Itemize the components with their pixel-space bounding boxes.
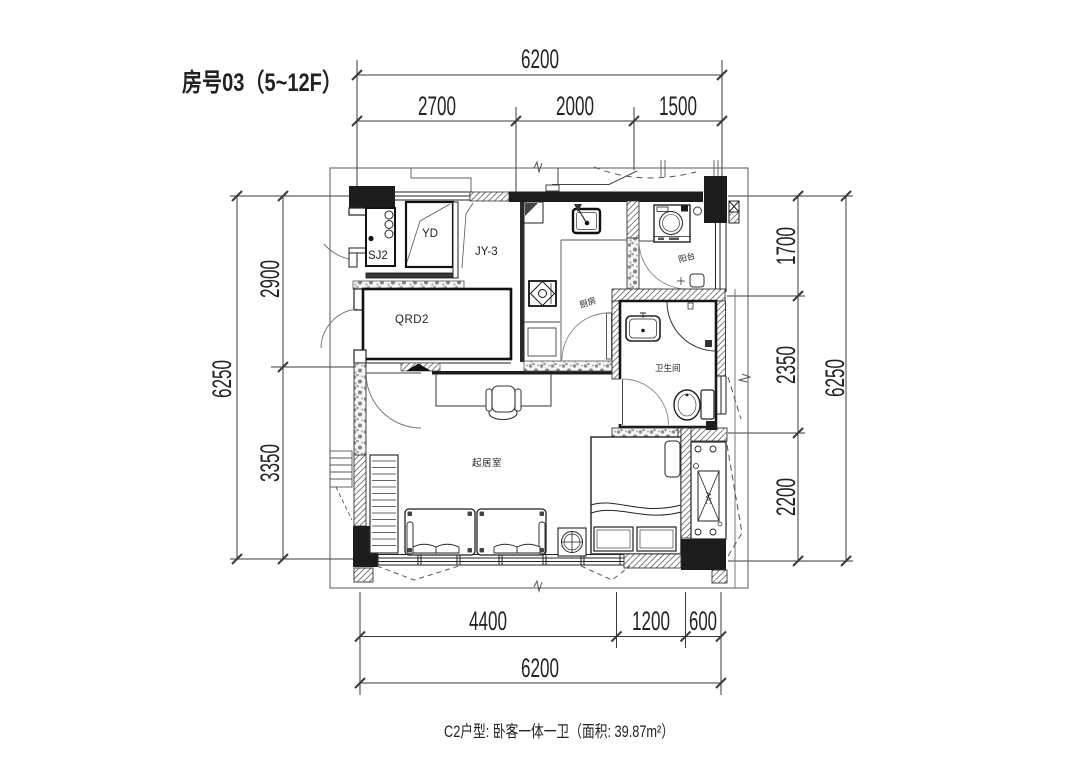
svg-text:2700: 2700 [418,91,456,121]
svg-text:C2户型: 卧客一体一卫（面积: 39.87m²）: C2户型: 卧客一体一卫（面积: 39.87m²） [444,722,674,741]
svg-text:600: 600 [689,606,717,636]
svg-text:2200: 2200 [771,478,801,516]
svg-text:SJ2: SJ2 [368,250,388,262]
svg-text:1200: 1200 [632,606,670,636]
svg-text:6200: 6200 [521,44,559,74]
svg-text:4400: 4400 [469,606,507,636]
svg-text:卫生间: 卫生间 [655,363,681,373]
svg-text:QRD2: QRD2 [395,314,429,326]
svg-text:2350: 2350 [771,346,801,384]
svg-text:1500: 1500 [659,91,697,121]
svg-text:2000: 2000 [556,91,594,121]
svg-text:A/C: A/C [704,492,713,505]
svg-text:JY-3: JY-3 [475,246,498,258]
svg-text:6250: 6250 [207,360,237,398]
svg-text:YD: YD [422,228,438,240]
svg-text:房号03（5~12F）: 房号03（5~12F） [182,68,342,97]
svg-text:3350: 3350 [255,444,285,482]
svg-text:2900: 2900 [255,260,285,298]
svg-text:1700: 1700 [771,227,801,265]
svg-text:6200: 6200 [521,653,559,683]
svg-text:起居室: 起居室 [472,457,502,469]
svg-text:6250: 6250 [820,359,850,397]
